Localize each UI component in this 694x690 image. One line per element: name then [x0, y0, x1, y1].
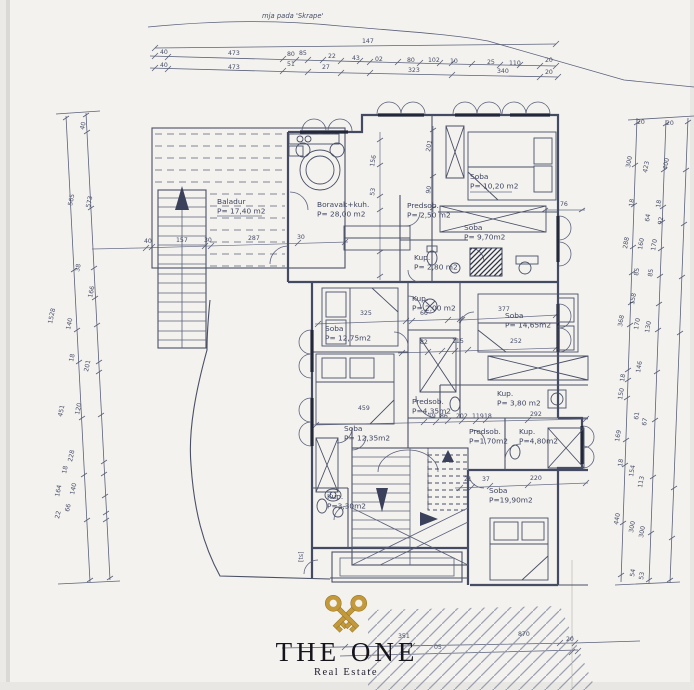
dim-label: 18 — [628, 198, 636, 207]
room-name: Predsob. — [412, 397, 444, 406]
dim-label: 288 — [622, 236, 631, 249]
dim-label: 368 — [617, 314, 626, 327]
room-name: Predsob. — [407, 201, 439, 210]
room-area: P= 12,75m2 — [325, 334, 371, 343]
dim-label: 325 — [360, 310, 372, 317]
dim-label: 323 — [408, 67, 420, 74]
room-name: Kup. — [414, 253, 430, 262]
room-area: P=19,90m2 — [489, 496, 533, 505]
dim-label: 473 — [228, 50, 240, 57]
dim-label: 18 — [655, 199, 663, 208]
room-name: Soba — [489, 486, 507, 495]
dim-label: 02 — [375, 56, 383, 63]
dim-label: 156 — [369, 154, 378, 167]
dim-label: 25 — [487, 59, 495, 66]
dim-label: 82 — [420, 339, 428, 346]
room-area: P= 12,35m2 — [344, 434, 390, 443]
dim-label: 30 — [204, 237, 212, 244]
dim-label: 252 — [510, 338, 522, 345]
dim-label: 43 — [352, 55, 360, 62]
dim-label: 459 — [358, 405, 370, 412]
dim-label: 18 — [619, 373, 627, 382]
room-area: P= 17,40 m2 — [217, 207, 265, 216]
dim-label: 115 — [452, 338, 464, 345]
dim-label: 85 — [647, 268, 655, 277]
dim-label: 292 — [530, 411, 542, 418]
room-area: P= 14,65m2 — [505, 321, 551, 330]
dim-label: 30 — [297, 234, 305, 241]
dim-label: 147 — [362, 38, 374, 45]
dim-label: 85 — [633, 267, 641, 276]
dim-label: 66 — [64, 503, 72, 512]
room-name: Kup. — [519, 427, 535, 436]
dim-label: 154 — [628, 464, 637, 477]
dim-label: 300 — [638, 525, 647, 538]
dim-label: 377 — [498, 306, 510, 313]
dim-label: 202 — [456, 413, 468, 420]
shower — [470, 248, 502, 276]
dim-label: 110 — [509, 60, 521, 67]
dim-label: 201 — [83, 359, 92, 372]
dim-label: 53 — [638, 571, 646, 580]
dim-label: 66 — [420, 310, 428, 317]
stairs-up-arrow — [442, 450, 454, 462]
dim-label: 86 — [440, 413, 448, 420]
scanned-floor-plan: mja pada 'Skrape' — [0, 0, 694, 690]
dim-label: 53 — [369, 187, 377, 196]
dim-label: 340 — [497, 68, 509, 75]
room-name: Baladur — [217, 197, 247, 206]
dim-label: 170 — [633, 317, 642, 330]
dim-label: 1528 — [47, 307, 57, 324]
room-name: Kup. — [497, 389, 513, 398]
dim-label: 423 — [642, 160, 651, 173]
dim-label: 40 — [79, 121, 87, 130]
dim-label: 113 — [637, 475, 646, 488]
dim-label: 157 — [176, 237, 188, 244]
dim-label: 80 — [287, 51, 295, 58]
dim-label: 67 — [641, 417, 649, 426]
dim-label: 76 — [560, 201, 568, 208]
dim-label: 166 — [87, 285, 96, 298]
exterior-stairs — [158, 186, 206, 348]
dim-label: 40 — [160, 62, 168, 69]
room-area: P= 9,70m2 — [464, 233, 505, 242]
dim-label: 120 — [74, 402, 83, 415]
dim-label: 169 — [614, 429, 623, 442]
dim-label: 21 — [464, 476, 472, 483]
dim-label: 440 — [613, 512, 622, 525]
room-name: Kup. — [327, 492, 343, 501]
scan-artifacts — [0, 0, 694, 690]
dim-label: 20 — [666, 120, 674, 127]
dim-label: 220 — [530, 475, 542, 482]
dim-label: 228 — [67, 449, 76, 462]
logo-subtitle: Real Estate — [314, 667, 378, 678]
dim-label: 140 — [65, 317, 74, 330]
crossed-keys-icon — [322, 592, 370, 633]
dim-label: 22 — [54, 510, 62, 519]
dim-label: 51 — [287, 61, 295, 68]
room-name: Soba — [464, 223, 482, 232]
room-area: P=1,70m2 — [469, 437, 508, 446]
dim-label: 170 — [650, 238, 659, 251]
room-name: Kup. — [412, 294, 428, 303]
dim-label: 140 — [69, 482, 78, 495]
dim-label: 20 — [545, 57, 553, 64]
dimension-labels-layer: 1474047380852243028010210251102040473512… — [47, 38, 674, 651]
dim-label: 20 — [566, 636, 574, 643]
dim-label: 130 — [644, 320, 653, 333]
room-area: P= 2,80 m2 — [414, 263, 458, 272]
dim-label: 300 — [628, 520, 637, 533]
room-name: Soba — [344, 424, 362, 433]
room-area: P= 2,50 m2 — [407, 211, 451, 220]
dim-label: 164 — [54, 484, 63, 497]
dim-label: 20 — [637, 119, 645, 126]
dim-label: 90 — [425, 185, 433, 194]
room-name: Boravak+kuh. — [317, 200, 369, 209]
room-area: P= 3,80 m2 — [497, 399, 541, 408]
dim-label: 102 — [428, 57, 440, 64]
dim-label: 64 — [644, 213, 652, 222]
room-area: P= 10,20 m2 — [470, 182, 518, 191]
dim-label: 20 — [545, 69, 553, 76]
right-dimension-chain — [615, 116, 694, 585]
room-name: Predsob. — [469, 427, 501, 436]
room-name: Soba — [470, 172, 488, 181]
bed-4 — [316, 354, 394, 424]
logo-title: THE ONE — [276, 637, 419, 667]
bath-fixtures — [317, 246, 566, 517]
dim-label: 400 — [662, 157, 671, 170]
dim-label: 565 — [67, 193, 76, 206]
dim-label: 18 — [68, 353, 76, 362]
dim-label: 27 — [322, 64, 330, 71]
room-area: P= 28,00 m2 — [317, 210, 365, 219]
dim-label: 150 — [617, 387, 626, 400]
floor-plan-drawing: mja pada 'Skrape' — [0, 0, 694, 690]
dim-label: 146 — [635, 360, 644, 373]
dim-label: 85 — [299, 50, 307, 57]
dim-label: 61 — [633, 411, 641, 420]
dim-label: 473 — [228, 64, 240, 71]
dim-label: 22 — [328, 53, 336, 60]
dim-label: 54 — [629, 568, 637, 577]
contour-label: mja pada 'Skrape' — [262, 12, 324, 20]
room-area: P=4,80m2 — [519, 437, 558, 446]
dim-label: 18 — [617, 458, 625, 467]
dim-label: 38 — [74, 263, 82, 272]
dim-label: 05 — [434, 644, 442, 651]
dim-label: 158 — [629, 292, 638, 305]
site-boundary — [190, 300, 330, 579]
dim-label: 119 — [472, 413, 484, 420]
dim-label: 160 — [637, 237, 646, 250]
dim-label: 870 — [518, 631, 530, 638]
dim-label: [ts] — [298, 552, 305, 562]
room-area: P= 2,00 m2 — [412, 304, 456, 313]
dim-label: 92 — [657, 216, 665, 225]
dim-label: 287 — [248, 235, 260, 242]
room-area: P=3,30m2 — [327, 502, 366, 511]
dim-label: 451 — [57, 404, 66, 417]
bed-5 — [490, 518, 548, 580]
stairs-down-arrow — [376, 488, 388, 512]
furniture — [289, 126, 588, 580]
dim-label: 37 — [482, 476, 490, 483]
dim-label: 10 — [450, 58, 458, 65]
dim-label: 40 — [160, 49, 168, 56]
dim-label: 18 — [61, 465, 69, 474]
dim-label: 40 — [144, 238, 152, 245]
left-dimension-chain — [56, 111, 120, 584]
dim-label: 19 — [428, 413, 436, 420]
dim-label: 80 — [407, 57, 415, 64]
room-name: Soba — [325, 324, 343, 333]
dim-label: 18 — [484, 413, 492, 420]
